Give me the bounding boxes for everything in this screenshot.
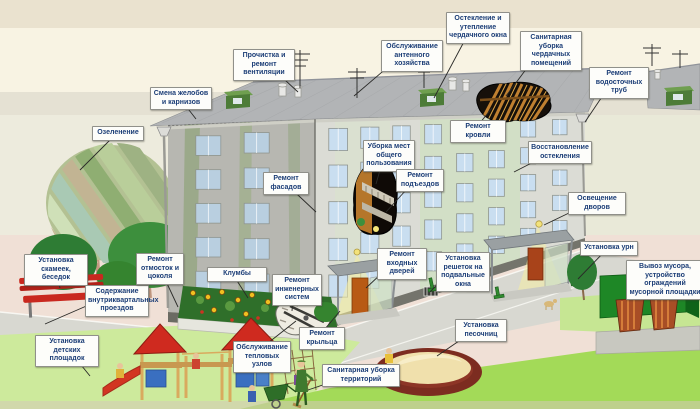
callout-antenna-service: Обслуживание антенного хозяйства [381,40,443,72]
callout-heat-units-service: Обслуживание тепловых узлов [233,341,291,373]
callout-attic-window-glazing: Остекление и утепление чердачного окна [446,12,510,44]
callout-porch-repair: Ремонт крыльца [299,327,345,350]
callout-vent-cleaning: Прочистка и ремонт вентиляции [233,49,295,81]
callout-attic-cleaning: Санитарная уборка чердачных помещений [520,31,582,71]
callout-facade-repair: Ремонт фасадов [263,172,309,195]
callout-greening: Озеленение [92,126,144,141]
callout-layer: Прочистка и ремонт вентиляцииСмена желоб… [0,0,700,409]
callout-urns-install: Установка урн [580,241,638,256]
callout-entrance-halls-repair: Ремонт подъездов [396,169,444,192]
callout-gutters-cornices: Смена желобов и карнизов [150,87,212,110]
callout-benches-install: Установка скамеек, беседок [24,254,88,286]
callout-engineering-systems: Ремонт инженерных систем [272,274,322,306]
callout-roof-repair: Ремонт кровли [450,120,506,143]
callout-playgrounds-install: Установка детских площадок [35,335,99,367]
callout-driveways-maintenance: Содержание внутриквартальных проездов [85,285,149,317]
callout-downpipe-repair: Ремонт водосточных труб [589,67,649,99]
callout-sandboxes-install: Установка песочниц [455,319,507,342]
callout-territory-cleaning: Санитарная уборка территорий [322,364,400,387]
callout-garbage-removal: Вывоз мусора, устройство ограждений мусо… [626,260,700,300]
diagram-canvas: Прочистка и ремонт вентиляцииСмена желоб… [0,0,700,409]
callout-flowerbeds: Клумбы [207,267,267,282]
callout-glazing-restoration: Восстановление остекления [528,141,592,164]
callout-yard-lighting: Освещение дворов [568,192,626,215]
callout-entrance-doors-repair: Ремонт входных дверей [377,248,427,280]
callout-common-areas-cleaning: Уборка мест общего пользования [363,140,415,172]
callout-basement-grilles: Установка решеток на подвальные окна [436,252,490,292]
callout-blind-area-repair: Ремонт отмосток и цоколя [136,253,184,285]
